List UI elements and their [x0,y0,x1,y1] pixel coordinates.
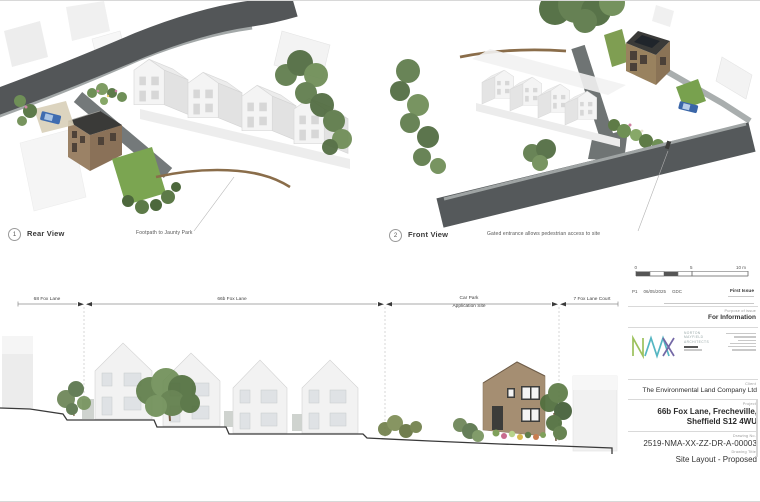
dim-sublabel: Application Site [452,303,485,309]
dim-label: 66b Fox Lane [217,296,247,302]
revision-code: P1 [632,289,638,294]
scale-zero: 0 [635,265,638,270]
drawing-sheet: 1 Rear View Footpath to Jaunty Park 2 Fr… [0,0,760,502]
scale-bar: 0 5 10 m [632,263,754,283]
revision-initials: GDC [672,289,682,294]
dim-label: 68 Fox Lane [34,296,61,302]
firm-name: NORTON MAYFIELD ARCHITECTS [684,331,709,351]
view-title: Rear View [27,229,65,238]
drawing-title: Site Layout - Proposed [628,455,757,464]
rear-garden [112,147,181,214]
sheet-edge-note [756,399,758,457]
dimension-lines [18,302,618,307]
practice-row: NORTON MAYFIELD ARCHITECTS [630,331,756,361]
trees [390,59,556,174]
proposed-house-elevation [483,362,546,440]
scale-five: 5 [690,265,693,270]
practice-contact [726,333,756,351]
drawing-no-label: Drawing No. [628,434,756,438]
purpose-label: Purpose of issue [628,309,756,313]
revision-description: First Issue [728,289,754,294]
trees [539,1,625,33]
leader-line [194,177,234,231]
revision-row: P1 06/05/2025 GDC First Issue [632,289,754,297]
revision-note [664,303,754,304]
street-elevation: 68 Fox Lane 66b Fox Lane Car Park Applic… [0,291,620,476]
context-building [573,376,617,451]
dim-label: Car Park [460,295,480,301]
view-number-badge: 1 [8,228,21,241]
revision-date: 06/05/2025 [644,289,667,294]
context-building [2,336,33,408]
nma-logo-icon [630,331,680,361]
front-view-render [380,1,760,261]
annotation-gated-entrance: Gated entrance allows pedestrian access … [487,231,600,237]
drawing-no: 2519-NMA-XX-ZZ-DR-A-00003 [628,439,757,448]
drawing-title-label: Drawing Title [628,450,756,454]
rear-view-render [0,1,380,261]
title-block: 0 5 10 m P1 06/05/2025 GDC First Issue P… [628,261,758,473]
view-number-badge: 2 [389,229,402,242]
dim-label: 7 Fox Lane Court [573,296,611,302]
project-name-line1: 66b Fox Lane, Frecheville, [628,407,757,417]
view-title: Front View [408,230,448,239]
annotation-footpath: Footpath to Jaunty Park [136,230,193,236]
project-label: Project [628,402,756,406]
project-name-line2: Sheffield S12 4WU [628,417,757,427]
proposed-house [626,31,670,85]
client-label: Client [628,382,756,386]
scale-ten: 10 m [736,265,746,270]
purpose-value: For Information [628,314,756,321]
client-name: The Environmental Land Company Ltd [628,387,757,394]
